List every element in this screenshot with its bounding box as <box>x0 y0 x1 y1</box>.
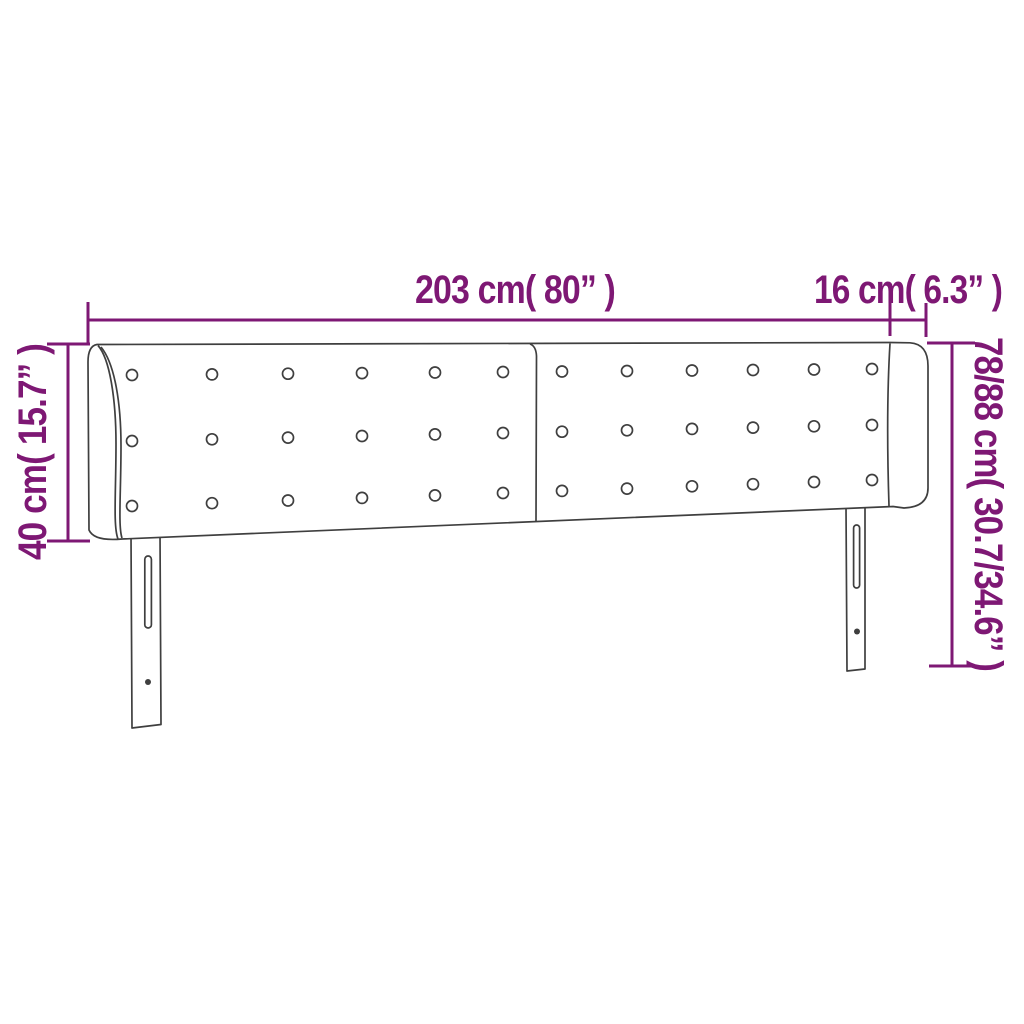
headboard-legs <box>131 505 865 728</box>
tufting-button <box>687 481 698 492</box>
tufting-button <box>430 367 441 378</box>
tufting-button <box>357 431 368 442</box>
tufting-button <box>127 370 138 381</box>
tufting-button <box>430 429 441 440</box>
tufting-button <box>867 364 878 375</box>
tufting-button <box>748 479 759 490</box>
total-width-label: 203 cm( 80” ) <box>415 268 615 312</box>
tufting-button <box>430 490 441 501</box>
tufting-button <box>622 483 633 494</box>
diagram-canvas: 203 cm( 80” ) 16 cm( 6.3” ) 40 cm( 15.7”… <box>0 0 1024 1024</box>
tufting-button <box>127 501 138 512</box>
tufting-button <box>809 477 820 488</box>
wing-depth-label: 16 cm( 6.3” ) <box>814 268 1002 312</box>
tufting-button <box>809 364 820 375</box>
tufting-button <box>622 425 633 436</box>
tufting-button <box>557 426 568 437</box>
tufting-button <box>748 365 759 376</box>
tufting-button <box>687 423 698 434</box>
tufting-button <box>283 432 294 443</box>
panel-height-label: 40 cm( 15.7” ) <box>11 344 55 560</box>
tufting-button <box>357 492 368 503</box>
tufting-button <box>557 485 568 496</box>
total-height-label: 78/88 cm( 30.7/34.6” ) <box>966 337 1010 671</box>
tufting-button <box>809 421 820 432</box>
tufting-button <box>207 369 218 380</box>
tufting-button <box>687 365 698 376</box>
tufting-button <box>748 422 759 433</box>
left-leg <box>131 532 161 728</box>
tufting-button <box>498 428 509 439</box>
tufting-button <box>557 366 568 377</box>
tufting-button <box>207 434 218 445</box>
headboard-dimension-diagram: 203 cm( 80” ) 16 cm( 6.3” ) 40 cm( 15.7”… <box>0 0 1024 1024</box>
tufting-button <box>867 475 878 486</box>
tufting-button <box>207 498 218 509</box>
tufting-button <box>498 488 509 499</box>
tufting-button <box>283 495 294 506</box>
right-leg-hole <box>854 629 860 635</box>
tufting-button <box>498 367 509 378</box>
tufting-button <box>127 436 138 447</box>
left-leg-hole <box>145 679 151 685</box>
tufting-button <box>622 366 633 377</box>
tufting-button <box>283 368 294 379</box>
tufting-button <box>357 368 368 379</box>
tufting-button <box>867 420 878 431</box>
